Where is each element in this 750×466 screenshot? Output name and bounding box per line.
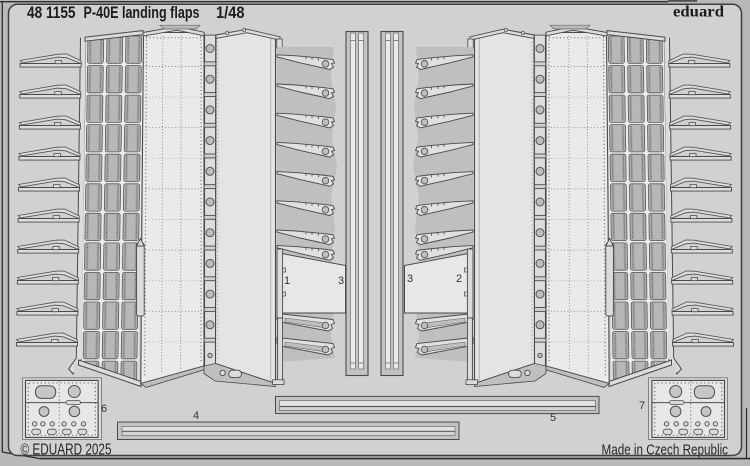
svg-text:6: 6 (101, 403, 107, 415)
svg-text:4: 4 (193, 410, 199, 422)
svg-text:1: 1 (284, 275, 290, 287)
svg-text:48 1155: 48 1155 (27, 3, 76, 22)
svg-text:Made in Czech Republic: Made in Czech Republic (602, 442, 729, 459)
svg-text:2: 2 (456, 273, 462, 285)
svg-text:1/48: 1/48 (216, 3, 245, 22)
svg-text:P-40E landing flaps: P-40E landing flaps (84, 3, 200, 22)
svg-text:eduard: eduard (673, 3, 724, 20)
svg-text:5: 5 (550, 412, 556, 424)
svg-text:3: 3 (407, 273, 413, 285)
svg-text:3: 3 (338, 275, 344, 287)
svg-text:© EDUARD 2025: © EDUARD 2025 (21, 442, 112, 459)
svg-text:7: 7 (639, 400, 645, 412)
